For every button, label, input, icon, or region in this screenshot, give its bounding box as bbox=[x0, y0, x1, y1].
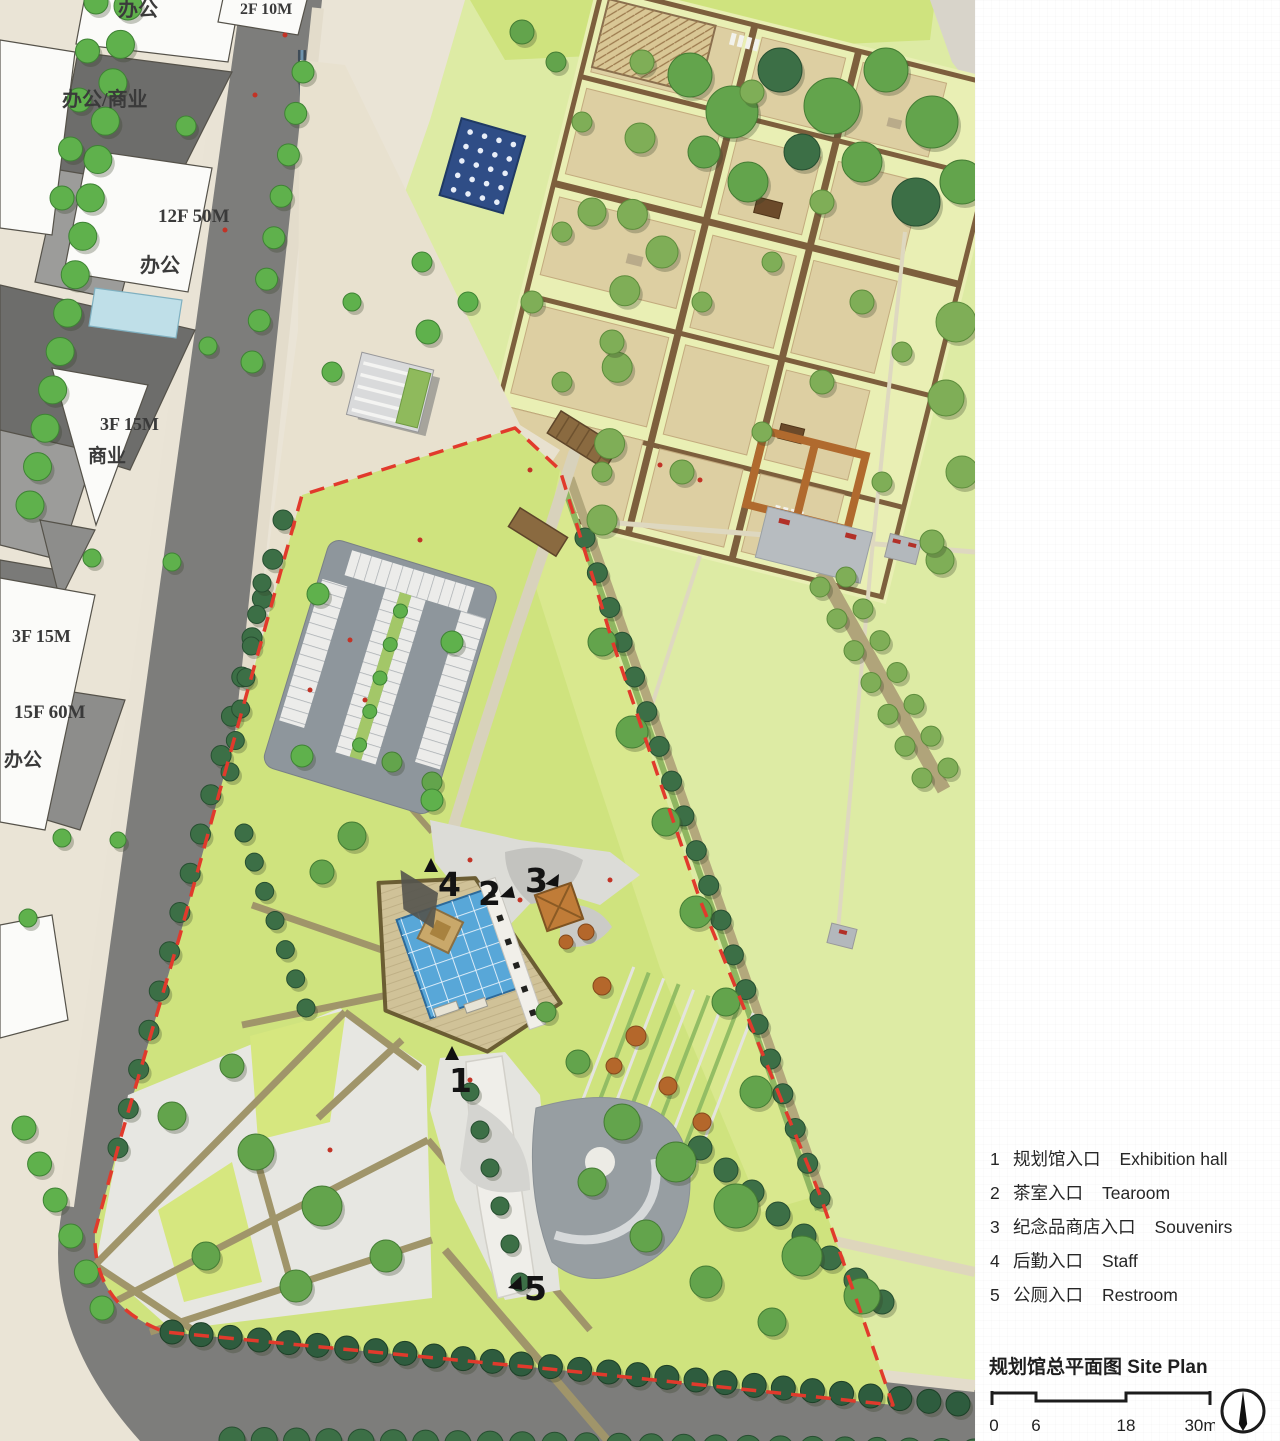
tree bbox=[864, 48, 908, 92]
site-plan-drawing: 办公 2F 10M 办公/商业 12F 50M 办公 3F 15M 商业 3F … bbox=[0, 0, 975, 1441]
tree bbox=[752, 422, 772, 442]
tree bbox=[690, 1266, 722, 1298]
tree bbox=[946, 1392, 970, 1416]
tree bbox=[12, 1116, 36, 1140]
tree bbox=[625, 123, 655, 153]
entrance-marker-1: 1 bbox=[449, 1061, 472, 1100]
tree bbox=[421, 789, 443, 811]
legend-label-zh: 茶室入口 bbox=[1013, 1182, 1083, 1204]
tree bbox=[19, 909, 37, 927]
tree bbox=[53, 829, 71, 847]
north-arrow-icon bbox=[1219, 1387, 1267, 1435]
tree bbox=[481, 1159, 499, 1177]
tree bbox=[292, 61, 314, 83]
tree bbox=[688, 136, 720, 168]
drawing-title-en: Site Plan bbox=[1127, 1357, 1207, 1378]
tree bbox=[728, 162, 768, 202]
label-office: 办公 bbox=[4, 748, 42, 771]
tree bbox=[84, 146, 112, 174]
tree bbox=[920, 530, 944, 554]
tree bbox=[248, 310, 270, 332]
tree bbox=[578, 198, 606, 226]
tree bbox=[180, 863, 200, 883]
tree bbox=[771, 1376, 795, 1400]
tree bbox=[441, 631, 463, 653]
tree bbox=[263, 227, 285, 249]
tree bbox=[588, 628, 616, 656]
tree bbox=[878, 704, 898, 724]
tree bbox=[810, 577, 830, 597]
tree bbox=[758, 48, 802, 92]
tree bbox=[370, 1240, 402, 1272]
tree bbox=[714, 1158, 738, 1182]
tree bbox=[853, 599, 873, 619]
tree bbox=[559, 935, 573, 949]
tree bbox=[649, 736, 669, 756]
tree bbox=[692, 292, 712, 312]
tree bbox=[758, 1308, 786, 1336]
tree bbox=[600, 330, 624, 354]
tree bbox=[593, 977, 611, 995]
label-office: 办公 bbox=[140, 253, 180, 277]
tree bbox=[302, 1186, 342, 1226]
legend-label-en: Restroom bbox=[1102, 1284, 1178, 1306]
legend-num: 5 bbox=[990, 1284, 1013, 1306]
label-commerce: 商业 bbox=[88, 444, 126, 467]
tree bbox=[782, 1236, 822, 1276]
tree bbox=[43, 1188, 67, 1212]
tree bbox=[872, 472, 892, 492]
tree bbox=[892, 178, 940, 226]
tree bbox=[587, 505, 617, 535]
tree bbox=[91, 107, 119, 135]
tree bbox=[74, 1260, 98, 1284]
tree bbox=[646, 236, 678, 268]
tree bbox=[659, 1077, 677, 1095]
tree bbox=[307, 583, 329, 605]
tree bbox=[784, 134, 820, 170]
tree bbox=[297, 999, 315, 1017]
tree bbox=[624, 667, 644, 687]
legend-label-zh: 后勤入口 bbox=[1013, 1250, 1083, 1272]
tree bbox=[946, 456, 975, 488]
tree bbox=[578, 924, 594, 940]
label-15f60m: 15F 60M bbox=[14, 702, 86, 723]
tree bbox=[568, 1357, 592, 1381]
legend-label-en: Souvenirs bbox=[1155, 1216, 1233, 1238]
tree bbox=[592, 462, 612, 482]
tree bbox=[617, 199, 647, 229]
entrance-marker-3: 3 bbox=[525, 861, 548, 900]
tree bbox=[595, 429, 625, 459]
tree bbox=[263, 549, 283, 569]
tree bbox=[491, 1197, 509, 1215]
legend-item-4: 4 后勤入口 Staff bbox=[990, 1250, 1270, 1272]
tree bbox=[291, 745, 313, 767]
tree bbox=[24, 453, 52, 481]
tree bbox=[521, 291, 543, 313]
tree bbox=[917, 1389, 941, 1413]
tree bbox=[280, 1270, 312, 1302]
tree bbox=[699, 875, 719, 895]
tree bbox=[686, 841, 706, 861]
tree bbox=[938, 758, 958, 778]
tree bbox=[199, 337, 217, 355]
tree bbox=[652, 808, 680, 836]
tree bbox=[850, 290, 874, 314]
legend-item-2: 2 茶室入口 Tearoom bbox=[990, 1182, 1270, 1204]
tree bbox=[266, 912, 284, 930]
tree bbox=[248, 606, 266, 624]
tree bbox=[69, 222, 97, 250]
tree bbox=[287, 970, 305, 988]
tree bbox=[285, 102, 307, 124]
tree bbox=[680, 896, 712, 928]
legend-item-1: 1 规划馆入口 Exhibition hall bbox=[990, 1148, 1270, 1170]
tree bbox=[578, 1168, 606, 1196]
label-2f10m: 2F 10M bbox=[240, 1, 292, 18]
tree bbox=[39, 376, 67, 404]
tree bbox=[192, 1242, 220, 1270]
tree bbox=[90, 1296, 114, 1320]
tree bbox=[59, 1224, 83, 1248]
tree bbox=[766, 1202, 790, 1226]
legend-num: 3 bbox=[990, 1216, 1013, 1238]
tree bbox=[912, 768, 932, 788]
scale-0: 0 bbox=[989, 1416, 998, 1435]
entrance-marker-4: 4 bbox=[438, 865, 461, 904]
tree bbox=[740, 80, 764, 104]
scale-6: 6 bbox=[1031, 1416, 1040, 1435]
tree bbox=[241, 351, 263, 373]
tree bbox=[235, 824, 253, 842]
tree bbox=[256, 882, 274, 900]
tree bbox=[382, 752, 402, 772]
tree bbox=[921, 726, 941, 746]
tree bbox=[46, 337, 74, 365]
legend-label-en: Staff bbox=[1102, 1250, 1138, 1272]
tree bbox=[712, 988, 740, 1016]
tree bbox=[740, 1076, 772, 1108]
tree bbox=[59, 137, 83, 161]
tree bbox=[844, 641, 864, 661]
tree bbox=[904, 694, 924, 714]
tree bbox=[895, 736, 915, 756]
tree bbox=[552, 372, 572, 392]
tree bbox=[538, 1355, 562, 1379]
scale-bar: 0 6 18 30m bbox=[989, 1387, 1215, 1437]
tree bbox=[76, 39, 100, 63]
tree bbox=[810, 190, 834, 214]
scale-30m: 30m bbox=[1184, 1416, 1215, 1435]
tree bbox=[714, 1184, 758, 1228]
tree bbox=[306, 1333, 330, 1357]
tree bbox=[762, 252, 782, 272]
tree bbox=[552, 222, 572, 242]
tree bbox=[928, 380, 964, 416]
tree bbox=[220, 1054, 244, 1078]
tree bbox=[163, 553, 181, 571]
tree bbox=[110, 832, 126, 848]
tree bbox=[566, 1050, 590, 1074]
tree bbox=[338, 822, 366, 850]
tree bbox=[597, 1360, 621, 1384]
entrance-marker-5: 5 bbox=[524, 1269, 547, 1308]
tree bbox=[310, 860, 334, 884]
tree bbox=[416, 320, 440, 344]
tree bbox=[480, 1349, 504, 1373]
label-office: 办公 bbox=[118, 0, 158, 21]
legend-label-zh: 公厕入口 bbox=[1013, 1284, 1083, 1306]
tree bbox=[31, 414, 59, 442]
tree bbox=[626, 1363, 650, 1387]
tree bbox=[322, 362, 342, 382]
tree bbox=[106, 30, 134, 58]
tree bbox=[804, 78, 860, 134]
tree bbox=[28, 1152, 52, 1176]
tree bbox=[256, 268, 278, 290]
tree bbox=[160, 942, 180, 962]
tree bbox=[836, 567, 856, 587]
tree bbox=[510, 20, 534, 44]
tree bbox=[158, 1102, 186, 1130]
tree bbox=[546, 52, 566, 72]
tree bbox=[656, 1142, 696, 1182]
tree bbox=[610, 276, 640, 306]
tree bbox=[713, 1371, 737, 1395]
tree bbox=[887, 663, 907, 683]
legend: 1 规划馆入口 Exhibition hall 2 茶室入口 Tearoom 3… bbox=[990, 1148, 1270, 1318]
tree bbox=[270, 185, 292, 207]
legend-num: 1 bbox=[990, 1148, 1013, 1170]
tree bbox=[606, 1058, 622, 1074]
legend-label-zh: 规划馆入口 bbox=[1013, 1148, 1101, 1170]
legend-item-5: 5 公厕入口 Restroom bbox=[990, 1284, 1270, 1306]
tree bbox=[50, 186, 74, 210]
tree bbox=[501, 1235, 519, 1253]
drawing-footer: 规划馆总平面图 Site Plan 0 6 18 30m bbox=[989, 1352, 1267, 1437]
legend-panel: 1 规划馆入口 Exhibition hall 2 茶室入口 Tearoom 3… bbox=[975, 0, 1280, 1441]
tree bbox=[572, 112, 592, 132]
tree bbox=[54, 299, 82, 327]
tree bbox=[668, 53, 712, 97]
drawing-title: 规划馆总平面图 Site Plan bbox=[989, 1352, 1267, 1379]
legend-item-3: 3 纪念品商店入口 Souvenirs bbox=[990, 1216, 1270, 1238]
legend-num: 2 bbox=[990, 1182, 1013, 1204]
tree bbox=[842, 142, 882, 182]
tree bbox=[16, 491, 44, 519]
tree bbox=[626, 1026, 646, 1046]
tree bbox=[655, 1365, 679, 1389]
tree bbox=[693, 1113, 711, 1131]
tree bbox=[536, 1002, 556, 1022]
tree bbox=[273, 510, 293, 530]
tree bbox=[810, 370, 834, 394]
tree bbox=[83, 549, 101, 567]
tree bbox=[827, 609, 847, 629]
tree bbox=[61, 261, 89, 289]
tree bbox=[253, 574, 271, 592]
tree bbox=[509, 1352, 533, 1376]
tree bbox=[276, 941, 294, 959]
tree bbox=[616, 716, 648, 748]
entrance-marker-2: 2 bbox=[478, 874, 501, 913]
tree bbox=[238, 1134, 274, 1170]
tree bbox=[742, 1373, 766, 1397]
tree bbox=[670, 460, 694, 484]
tree bbox=[76, 184, 104, 212]
tree bbox=[458, 292, 478, 312]
tree bbox=[630, 1220, 662, 1252]
tree bbox=[471, 1121, 489, 1139]
tree bbox=[870, 631, 890, 651]
label-3f15m: 3F 15M bbox=[12, 626, 71, 646]
tree bbox=[277, 144, 299, 166]
tree bbox=[245, 853, 263, 871]
tree bbox=[343, 293, 361, 311]
tree bbox=[604, 1104, 640, 1140]
tree bbox=[936, 302, 975, 342]
drawing-title-zh: 规划馆总平面图 bbox=[989, 1357, 1122, 1378]
legend-num: 4 bbox=[990, 1250, 1013, 1272]
label-3f15m: 3F 15M bbox=[100, 414, 159, 434]
tree bbox=[412, 252, 432, 272]
tree bbox=[892, 342, 912, 362]
tree bbox=[630, 50, 654, 74]
site-plan-sheet: 办公 2F 10M 办公/商业 12F 50M 办公 3F 15M 商业 3F … bbox=[0, 0, 1280, 1441]
tree bbox=[662, 771, 682, 791]
label-12f50m: 12F 50M bbox=[158, 206, 230, 227]
label-office-commerce: 办公/商业 bbox=[62, 87, 148, 111]
scale-18: 18 bbox=[1117, 1416, 1136, 1435]
tree bbox=[861, 673, 881, 693]
tree bbox=[176, 116, 196, 136]
tree bbox=[906, 96, 958, 148]
tree bbox=[684, 1368, 708, 1392]
legend-label-en: Tearoom bbox=[1102, 1182, 1170, 1204]
legend-label-zh: 纪念品商店入口 bbox=[1013, 1216, 1136, 1238]
legend-label-en: Exhibition hall bbox=[1120, 1148, 1228, 1170]
